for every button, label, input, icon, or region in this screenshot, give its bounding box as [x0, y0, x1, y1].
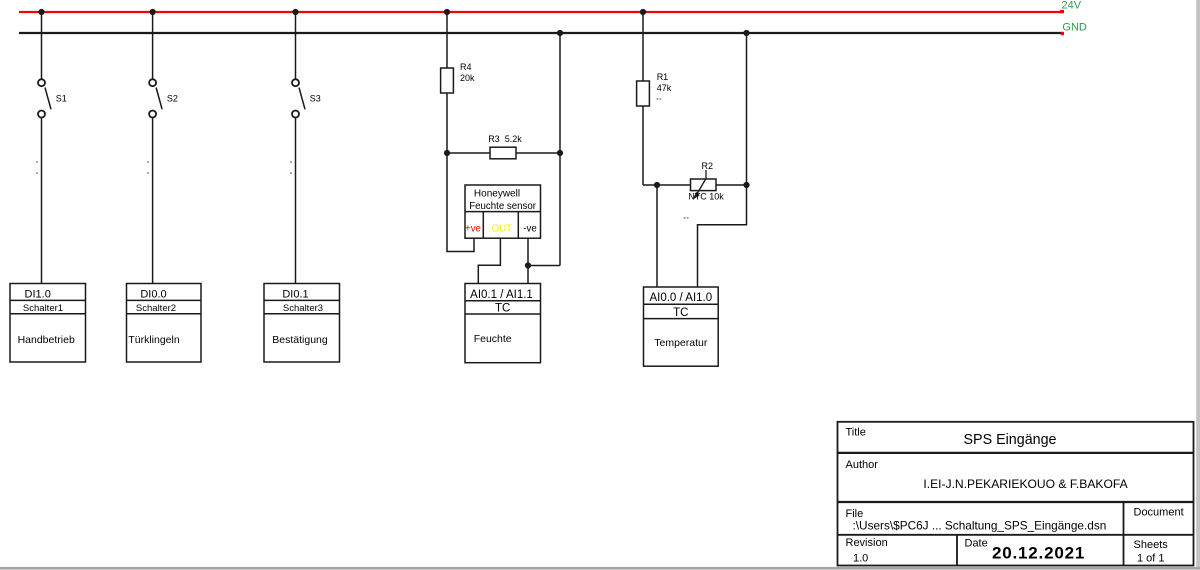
- svg-text:R3 5.2k: R3 5.2k: [488, 134, 522, 144]
- svg-text:Date: Date: [965, 538, 988, 550]
- svg-text::\Users\$PC6J ... Schaltung_SP: :\Users\$PC6J ... Schaltung_SPS_Eingänge…: [853, 519, 1107, 533]
- svg-text:NTC 10k: NTC 10k: [688, 192, 724, 202]
- svg-text:Title: Title: [846, 427, 866, 439]
- svg-text:AI0.1 / AI1.1: AI0.1 / AI1.1: [470, 289, 533, 301]
- svg-text:GND: GND: [1062, 22, 1087, 34]
- svg-text:Temperatur: Temperatur: [654, 337, 708, 349]
- svg-text:Honeywell: Honeywell: [474, 189, 520, 200]
- svg-text:DI0.0: DI0.0: [140, 288, 166, 300]
- svg-text:DI0.1: DI0.1: [282, 288, 308, 300]
- svg-text:Handbetrieb: Handbetrieb: [18, 334, 75, 346]
- svg-text:Document: Document: [1134, 507, 1184, 519]
- svg-text:Revision: Revision: [846, 537, 888, 549]
- svg-text:Türklingeln: Türklingeln: [128, 334, 180, 346]
- svg-text:DI1.0: DI1.0: [25, 288, 51, 300]
- svg-text:OUT: OUT: [492, 223, 513, 234]
- svg-text:Feuchte sensor: Feuchte sensor: [469, 201, 537, 212]
- svg-text:+ve: +ve: [465, 223, 481, 234]
- svg-text:R1: R1: [657, 72, 669, 82]
- svg-text:24V: 24V: [1062, 0, 1082, 11]
- svg-text:Author: Author: [846, 459, 879, 471]
- svg-text:Schalter2: Schalter2: [136, 303, 176, 314]
- svg-text:S3: S3: [310, 94, 321, 104]
- svg-text:S2: S2: [167, 94, 178, 104]
- svg-text:Bestätigung: Bestätigung: [272, 334, 328, 346]
- svg-text:TC: TC: [673, 307, 688, 319]
- svg-text:20.12.2021: 20.12.2021: [992, 544, 1085, 563]
- svg-text:Schalter3: Schalter3: [283, 303, 323, 314]
- svg-text:-ve: -ve: [523, 223, 536, 234]
- svg-text:20k: 20k: [460, 73, 475, 83]
- svg-text:47k: 47k: [657, 83, 672, 93]
- svg-text:SPS Eingänge: SPS Eingänge: [964, 432, 1057, 448]
- svg-text:R4: R4: [460, 62, 472, 72]
- svg-text:Sheets: Sheets: [1134, 539, 1169, 551]
- svg-text:1.0: 1.0: [853, 553, 868, 565]
- svg-text:R2: R2: [702, 161, 714, 171]
- svg-text:AI0.0 / AI1.0: AI0.0 / AI1.0: [649, 292, 712, 304]
- svg-text:TC: TC: [495, 303, 510, 315]
- svg-text:S1: S1: [56, 94, 67, 104]
- svg-text:Feuchte: Feuchte: [474, 333, 512, 345]
- svg-text:I.EI-J.N.PEKARIEKOUO & F.BAKOF: I.EI-J.N.PEKARIEKOUO & F.BAKOFA: [923, 477, 1128, 491]
- svg-text:1 of 1: 1 of 1: [1137, 553, 1165, 565]
- svg-text:Schalter1: Schalter1: [23, 303, 63, 314]
